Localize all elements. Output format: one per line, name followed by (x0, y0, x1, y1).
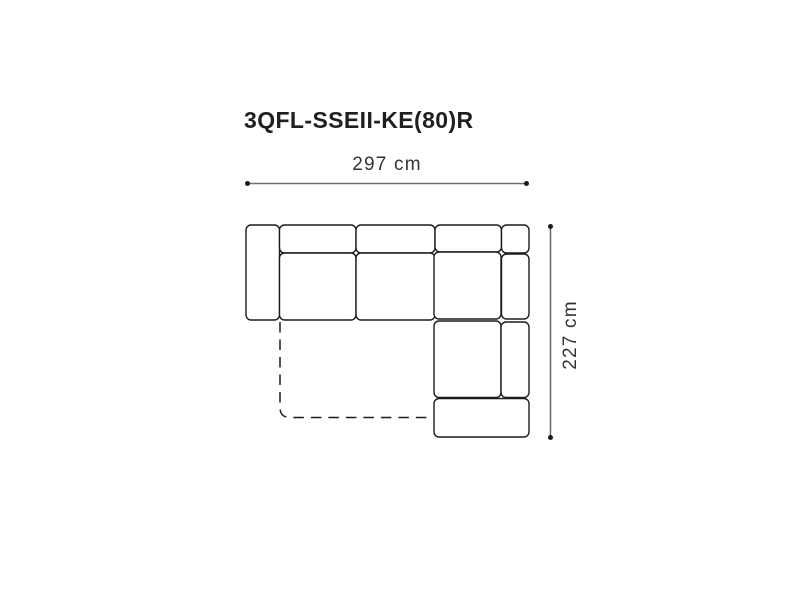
bed-extension-dashed-outline (280, 322, 434, 418)
seat-cushion-2 (356, 253, 435, 320)
right-armrest-lower (501, 322, 529, 398)
backrest-segment-1 (280, 225, 357, 253)
seat-cushion-1 (280, 253, 357, 320)
left-armrest (246, 225, 280, 320)
chaise-front-rail (434, 399, 529, 438)
width-dimension-line (245, 181, 529, 186)
backrest-segment-2 (356, 225, 435, 253)
right-armrest-upper (502, 254, 530, 319)
height-dimension-line (548, 224, 553, 440)
backrest-segment-3 (435, 225, 502, 252)
width-dim-right-dot (524, 181, 529, 186)
sofa-top-view-drawing (0, 0, 800, 600)
right-armrest-top (502, 225, 530, 253)
height-dim-bottom-dot (548, 435, 553, 440)
diagram-canvas: 3QFL-SSEII-KE(80)R 297 cm 227 cm (0, 0, 800, 600)
sofa-outline (246, 225, 529, 437)
height-dim-top-dot (548, 224, 553, 229)
width-dim-left-dot (245, 181, 250, 186)
corner-seat-cushion (434, 252, 501, 319)
chaise-seat-cushion (434, 321, 501, 398)
